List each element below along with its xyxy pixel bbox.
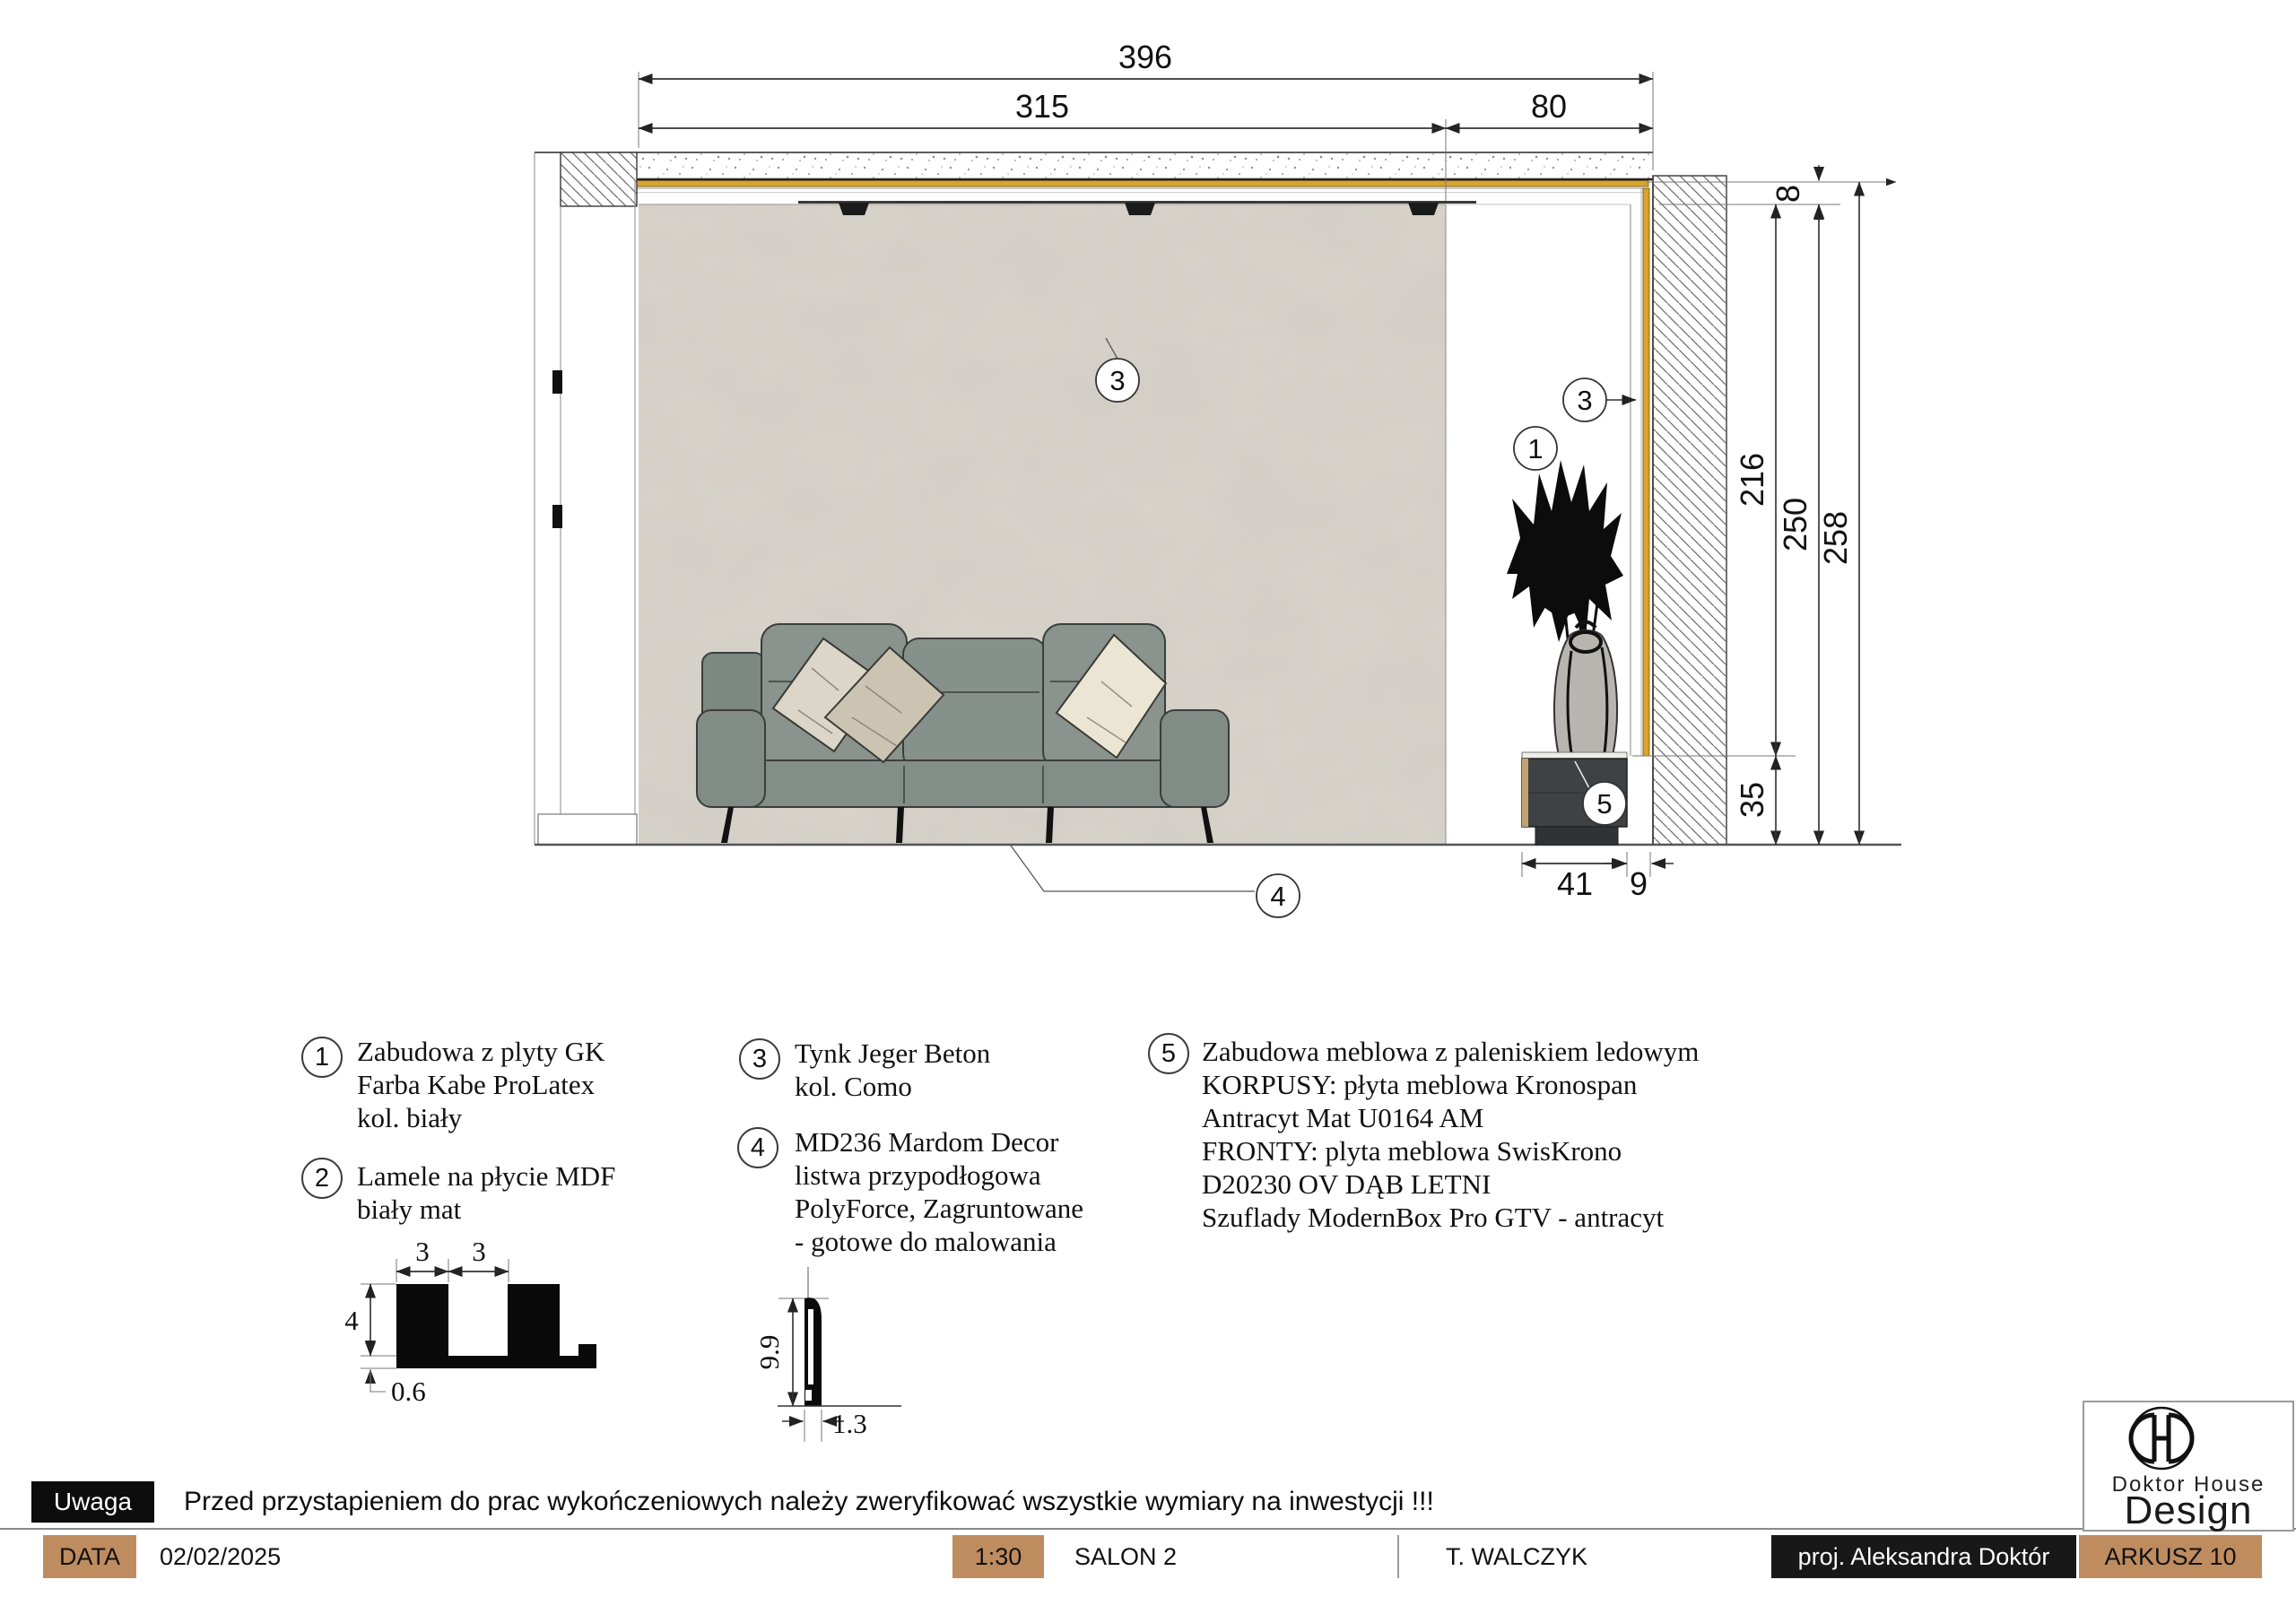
legend-item-4-line: - gotowe do malowania: [795, 1225, 1083, 1258]
titlebar-scale: 1:30: [952, 1535, 1044, 1578]
logo-word: Design: [2084, 1488, 2292, 1533]
legend-item-2-line: Lamele na płycie MDF: [357, 1159, 615, 1193]
door-hinge-icon: [552, 370, 562, 394]
titlebar-room-text: SALON 2: [1074, 1543, 1177, 1571]
dim-niche-width: 80: [1531, 88, 1567, 125]
callout-strip-num: 3: [1577, 385, 1592, 416]
legend-callout-3-num: 3: [752, 1045, 767, 1074]
skirting-dim-height: 9.9: [753, 1335, 785, 1370]
titlebar-divider: [1397, 1535, 1399, 1578]
dim-niche-height: 216: [1734, 453, 1770, 507]
spotlight-icon: [839, 203, 869, 215]
legend-item-1-line: Farba Kabe ProLatex: [357, 1068, 604, 1101]
legend-item-2: Lamele na płycie MDF biały mat: [357, 1159, 615, 1226]
legend-callout-2-num: 2: [315, 1164, 329, 1193]
lamella-dim-base: 0.6: [391, 1376, 426, 1407]
lamella-dim-height: 4: [344, 1305, 359, 1336]
wall-section-right: [1653, 176, 1726, 845]
legend-item-5-line: FRONTY: plyta meblowa SwisKrono: [1202, 1134, 1699, 1167]
titlebar-data-label: DATA: [43, 1535, 136, 1578]
legend-item-5: Zabudowa meblowa z paleniskiem ledowym K…: [1202, 1035, 1699, 1234]
dim-total-width: 396: [1118, 39, 1172, 75]
cabinet-plinth: [1535, 827, 1618, 845]
dim-cabinet-width: 41: [1557, 865, 1593, 902]
titlebar-client: T. WALCZYK: [1446, 1535, 1742, 1578]
left-door-jamb: [535, 152, 637, 845]
legend-item-4-line: MD236 Mardom Decor: [795, 1125, 1083, 1159]
legend-item-3-line: Tynk Jeger Beton: [795, 1037, 990, 1070]
warning-badge: Uwaga: [31, 1481, 154, 1523]
legend-item-5-line: Szuflady ModernBox Pro GTV - antracyt: [1202, 1201, 1699, 1234]
legend-item-1: Zabudowa z plyty GK Farba Kabe ProLatex …: [357, 1035, 604, 1134]
skirting-profile-detail: 9.9 1.3: [753, 1267, 901, 1442]
lamella-dim-gap: 3: [472, 1236, 486, 1267]
legend-item-5-line: Antracyt Mat U0164 AM: [1202, 1101, 1699, 1134]
sheet-page: 396 315 80 8 216 35 250 258: [0, 0, 2296, 1623]
titlebar-room: SALON 2: [1074, 1535, 1361, 1578]
wall-section-left: [561, 152, 637, 206]
titlebar-separator: [0, 1528, 2296, 1530]
titlebar-designer: proj. Aleksandra Doktór: [1771, 1535, 2076, 1578]
legend-callout-5-num: 5: [1161, 1039, 1176, 1069]
cabinet-oak-side: [1522, 759, 1528, 827]
dim-side-gap: 9: [1630, 865, 1648, 902]
legend-item-5-line: Zabudowa meblowa z paleniskiem ledowym: [1202, 1035, 1699, 1068]
callout-cabinet-num: 5: [1596, 788, 1612, 820]
callout-skirting-num: 4: [1270, 881, 1285, 912]
dim-cabinet-height: 35: [1734, 782, 1770, 818]
dimension-lines-bottom: 41 9: [1522, 852, 1674, 902]
legend-item-4-line: listwa przypodłogowa: [795, 1159, 1083, 1192]
legend-item-5-line: KORPUSY: płyta meblowa Kronospan: [1202, 1068, 1699, 1101]
legend-callout-3: 3: [739, 1038, 780, 1080]
legend-item-1-line: Zabudowa z plyty GK: [357, 1035, 604, 1068]
legend-item-3-line: kol. Como: [795, 1070, 990, 1103]
door-hinge-icon: [552, 505, 562, 528]
callout-gk-num: 1: [1527, 433, 1543, 464]
gold-strip-vertical: [1643, 188, 1649, 756]
titlebar-scale-text: 1:30: [975, 1543, 1022, 1571]
legend-callout-1-num: 1: [315, 1043, 329, 1072]
logo-box: Doktor House Design: [2083, 1401, 2294, 1532]
titlebar-sheet-text: ARKUSZ 10: [2104, 1543, 2236, 1571]
legend-item-4: MD236 Mardom Decor listwa przypodłogowa …: [795, 1125, 1083, 1258]
spotlight-icon: [1125, 203, 1155, 215]
legend-item-5-line: D20230 OV DĄB LETNI: [1202, 1167, 1699, 1201]
legend-item-4-line: PolyForce, Zagruntowane: [795, 1192, 1083, 1225]
gold-strip-horizontal: [635, 181, 1648, 187]
titlebar-date: 02/02/2025: [160, 1535, 429, 1578]
legend-callout-4: 4: [737, 1127, 778, 1168]
titlebar-date-text: 02/02/2025: [160, 1543, 281, 1571]
lamella-dim-slat: 3: [415, 1236, 430, 1267]
titlebar-data-label-text: DATA: [59, 1543, 120, 1571]
warning-text: Przed przystapieniem do prac wykończenio…: [184, 1481, 1434, 1523]
legend-callout-1: 1: [301, 1037, 343, 1078]
dim-slab-height: 258: [1817, 511, 1854, 565]
dim-wall-width: 315: [1015, 88, 1069, 125]
legend-item-1-line: kol. biały: [357, 1101, 604, 1134]
dim-recess: 8: [1770, 185, 1806, 203]
titlebar-designer-text: proj. Aleksandra Doktór: [1798, 1543, 2050, 1571]
ceiling-slab: [535, 152, 1653, 193]
dim-ceiling-height: 250: [1777, 498, 1813, 551]
elevation-drawing: 396 315 80 8 216 35 250 258: [0, 0, 2296, 1471]
lamella-profile-detail: 3 3 4 0.6: [344, 1236, 596, 1407]
titlebar-client-text: T. WALCZYK: [1446, 1543, 1587, 1571]
titlebar-sheet: ARKUSZ 10: [2079, 1535, 2262, 1578]
skirting-dim-width: 1.3: [832, 1408, 867, 1439]
legend-callout-2: 2: [301, 1158, 343, 1199]
dried-plant: [1507, 460, 1623, 756]
spotlight-icon: [1408, 203, 1439, 215]
legend-item-2-line: biały mat: [357, 1193, 615, 1226]
legend-item-3: Tynk Jeger Beton kol. Como: [795, 1037, 990, 1103]
legend-callout-4-num: 4: [751, 1133, 765, 1163]
legend-callout-5: 5: [1148, 1033, 1189, 1074]
callout-plaster-num: 3: [1109, 365, 1125, 396]
